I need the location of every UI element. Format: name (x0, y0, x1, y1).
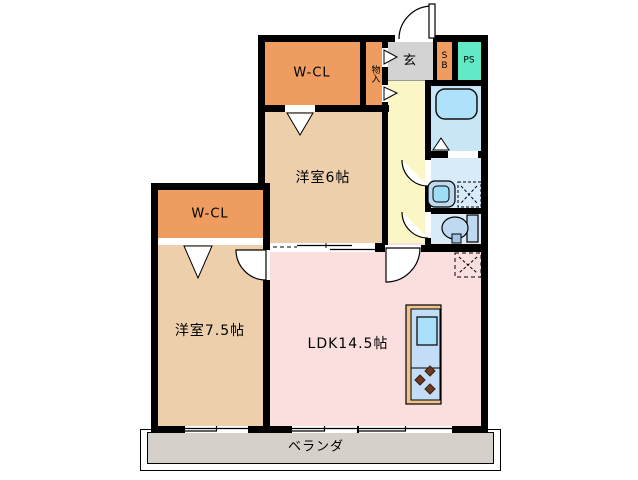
folding-door-triangle (384, 50, 397, 64)
folding-door-triangle (384, 87, 397, 100)
bath-door-triangle (433, 138, 449, 150)
floor-plan: W-CL 物入 玄 SB PS 洋室6帖 W-CL 洋室7.5帖 LDK14.5… (0, 0, 638, 480)
room-label-genkan: 玄 (403, 55, 417, 68)
room-label-wcl-lower: W-CL (191, 208, 228, 221)
hall-ldk-door-arc (386, 248, 420, 282)
room-label-shoebox: SB (440, 51, 449, 71)
room-label-wcl-top: W-CL (293, 67, 330, 80)
wash-basin-bowl (433, 186, 449, 202)
washroom-door-arc (402, 160, 428, 186)
washing-machine-space-x (461, 186, 477, 203)
room-label-pipe-space: PS (463, 57, 474, 66)
bathtub (436, 89, 477, 119)
toilet-tank (467, 215, 478, 242)
folding-door-triangle (287, 113, 313, 135)
toilet-seat-box (452, 234, 461, 243)
entrance-door-leaf (429, 4, 435, 38)
room-label-monoire: 物入 (370, 65, 379, 83)
toilet-door-arc (402, 212, 428, 238)
room-label-bedroom6: 洋室6帖 (296, 171, 351, 185)
entrance-door-arc (399, 6, 432, 39)
room-label-veranda: ベランダ (288, 441, 344, 454)
room-label-bedroom75: 洋室7.5帖 (175, 324, 245, 338)
refrigerator-space-x (459, 257, 477, 273)
folding-door-triangle (184, 246, 212, 278)
bedroom75-door-arc (236, 250, 266, 280)
kitchen-sink (417, 317, 437, 345)
room-label-ldk: LDK14.5帖 (308, 337, 389, 351)
window-symbol (185, 426, 452, 431)
